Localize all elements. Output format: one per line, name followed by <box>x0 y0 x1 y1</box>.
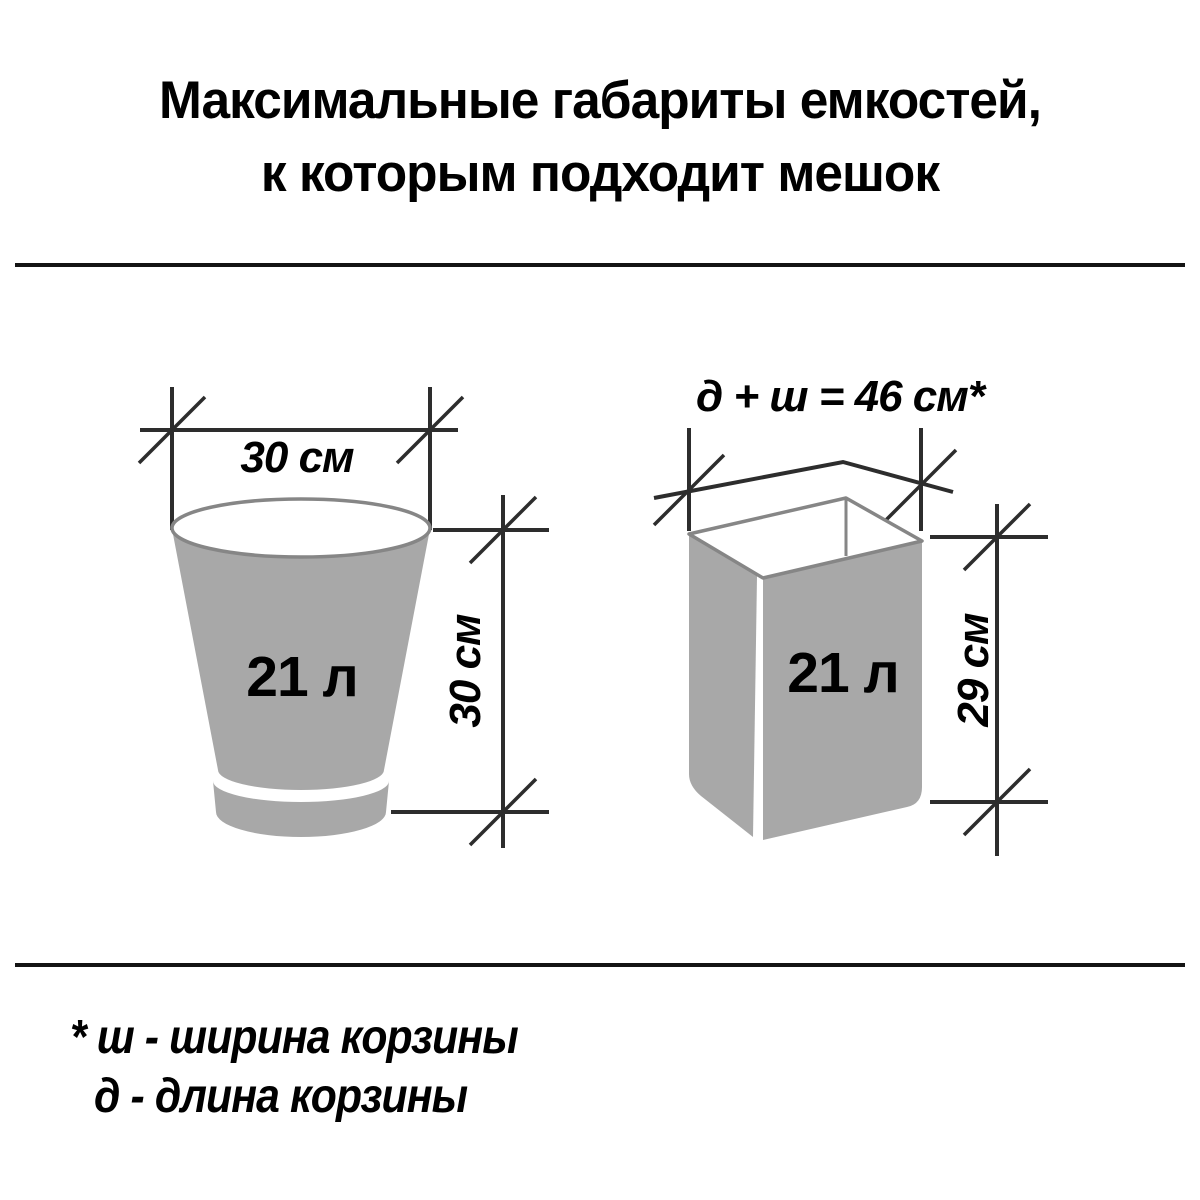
footnote: * ш - ширина корзины д - длина корзины <box>70 1008 518 1126</box>
divider-bottom <box>15 963 1185 967</box>
footnote-line-1: * ш - ширина корзины <box>70 1008 518 1067</box>
bucket-opening <box>172 499 430 557</box>
bucket-width-label: 30 см <box>240 433 354 482</box>
figure-round-bucket: 30 см 21 л 30 см <box>120 380 580 880</box>
title-line-2: к которым подходит мешок <box>18 137 1182 210</box>
basket-left-face <box>689 534 757 837</box>
basket-formula-label: д + ш = 46 см* <box>696 372 987 421</box>
divider-top <box>15 263 1185 267</box>
basket-volume-label: 21 л <box>787 641 898 705</box>
basket-height-label: 29 см <box>949 613 998 728</box>
title-line-1: Максимальные габариты емкостей, <box>18 64 1182 137</box>
figure-rect-basket: д + ш = 46 см* 21 л 29 см <box>630 355 1100 865</box>
bucket-volume-label: 21 л <box>246 645 357 709</box>
footnote-line-2: д - длина корзины <box>94 1067 518 1126</box>
bucket-height-label: 30 см <box>441 614 490 728</box>
infographic-canvas: Максимальные габариты емкостей, к которы… <box>0 0 1200 1200</box>
page-title: Максимальные габариты емкостей, к которы… <box>18 64 1182 210</box>
basket-height-dimension: 29 см <box>930 504 1048 856</box>
